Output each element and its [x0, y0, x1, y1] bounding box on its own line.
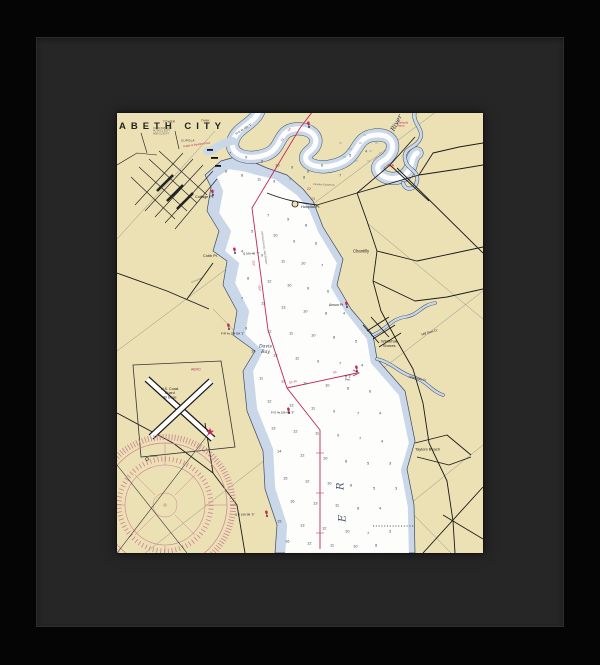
sounding-depth: 10 [273, 233, 277, 238]
label-light-1: Fl G 4s 16ft “1” [235, 123, 252, 136]
label-aero: AERO [191, 368, 201, 372]
sounding-depth: 13 [289, 403, 293, 408]
sounding-depth: 8 [345, 459, 347, 464]
label-river-letter-e: E [337, 515, 348, 522]
label-cobb-pt: Cobb Pt. [203, 254, 218, 258]
sounding-depth: 9 [287, 217, 289, 222]
sounding-depth: 16 [285, 539, 289, 544]
sounding-depth: 8 [350, 483, 352, 488]
sounding-depth: 9 [245, 155, 247, 160]
label-light-2: Fl R 4s 15ft 5M “2” [221, 332, 244, 335]
sounding-depth: 10 [353, 544, 357, 549]
sounding-depth: 11 [259, 376, 263, 381]
mat-board: ABETH CITY TOWERTANKCUPOLAOVHD PWR CAB A… [36, 37, 564, 627]
label-chantilly: Chantilly [353, 249, 369, 254]
sounding-depth: 9 [273, 179, 275, 184]
label-tank: TANK [201, 119, 210, 122]
sounding-depth: 12 [281, 379, 285, 384]
chart-labels-layer: TOWERTANKCUPOLAOVHD PWR CAB AUTH CL 50 F… [117, 113, 483, 553]
sounding-depth: 9 [333, 409, 335, 414]
label-route-23: 23 [311, 197, 315, 201]
sounding-depth: 13 [273, 353, 277, 358]
sounding-depth: 4 [241, 249, 243, 254]
sounding-depth: 4 [379, 411, 381, 416]
sounding-depth: 16 [290, 499, 294, 504]
label-course-231: 231° [252, 260, 256, 267]
label-route-22: 22 [307, 187, 311, 191]
sounding-depth: 8 [261, 159, 263, 164]
chart-print: ABETH CITY TOWERTANKCUPOLAOVHD PWR CAB A… [117, 113, 483, 553]
label-route-18a: 18A [387, 163, 394, 168]
sounding-depth: 11 [311, 406, 315, 411]
sounding-depth: 11 [257, 177, 261, 182]
sounding-depth: 10 [311, 333, 315, 338]
sounding-depth: 8 [357, 506, 359, 511]
sounding-depth: 9 [245, 326, 247, 331]
label-bridge-note: OVHD PWR CAB AUTH CL 50 FT HOR CL 80 FT [153, 127, 172, 135]
sounding-depth: 8 [347, 386, 349, 391]
sounding-depth: 7 [321, 263, 323, 268]
sounding-depth: 7 [359, 436, 361, 441]
label-davis-bay: Davis Bay [259, 344, 272, 355]
label-hospital-pt: Hospital Pt. [301, 205, 320, 209]
label-areneuse-cr: Areneuse Cr [408, 375, 426, 382]
sounding-depth: 3 [389, 529, 391, 534]
sounding-depth: 5 [367, 461, 369, 466]
sounding-depth: 4 [365, 149, 367, 154]
sounding-depth: 7 [289, 177, 291, 182]
label-course-54-top: 54 [287, 127, 292, 132]
sounding-depth: 13 [281, 305, 285, 310]
sounding-depth: 8 [307, 169, 309, 174]
sounding-depth: 12 [267, 279, 271, 284]
label-river-letter-r: R [335, 482, 346, 490]
label-light-2-priv: R “2” Priv [345, 375, 351, 381]
sounding-depth: 3 [395, 486, 397, 491]
sounding-depth: 8 [305, 223, 307, 228]
sounding-depth: 8 [241, 173, 243, 178]
sounding-depth: 7 [357, 411, 359, 416]
sounding-depth: 5 [355, 339, 357, 344]
sounding-depth: 12 [267, 329, 271, 334]
sounding-depth: 6 [225, 169, 227, 174]
label-course-51-44: 51 44 [289, 379, 297, 384]
sounding-depth: 4 [343, 311, 345, 316]
sounding-depth: 5 [251, 229, 253, 234]
sounding-depth: 10 [325, 383, 329, 388]
sounding-depth: 9 [293, 239, 295, 244]
sounding-depth: 13 [300, 523, 304, 528]
sounding-depth: 6 [327, 289, 329, 294]
sounding-depth: 10 [345, 529, 349, 534]
label-taylors-beach: Taylors Beach [415, 447, 440, 452]
sounding-depth: 10 [275, 163, 279, 168]
sounding-depth: 9 [261, 253, 263, 258]
sounding-depth: 4 [379, 506, 381, 511]
sounding-depth: 7 [229, 151, 231, 156]
sounding-depth: 5 [349, 153, 351, 158]
sounding-depth: 10 [303, 309, 307, 314]
sounding-depth: 10 [327, 481, 331, 486]
sounding-depth: 8 [325, 311, 327, 316]
sounding-depth: 13 [313, 501, 317, 506]
label-light-5: Fl G 4s 15ft 4M “5” [271, 411, 294, 414]
label-cottage-pt: Cottage Pt. [195, 195, 214, 199]
sounding-depth: 12 [305, 479, 309, 484]
sounding-depth: 11 [289, 331, 293, 336]
label-anson-pt: Anson Pt [329, 303, 343, 307]
sounding-depth: 14 [277, 449, 281, 454]
sounding-depth: 6 [315, 241, 317, 246]
label-light-7: Q 16ft 4M “7” [243, 252, 259, 255]
sounding-depth: 10 [287, 283, 291, 288]
sounding-depth: 9 [317, 359, 319, 364]
sounding-depth: 7 [367, 531, 369, 536]
label-course-54-mid: 54 [333, 370, 337, 374]
sounding-depth: 11 [281, 259, 285, 264]
label-tower: TOWER [163, 120, 175, 123]
sounding-depth: 7 [339, 173, 341, 178]
sounding-depth: 12 [267, 399, 271, 404]
sounding-depth: 10 [301, 261, 305, 266]
sounding-depth: 12 [293, 429, 297, 434]
sounding-depth: 15 [283, 476, 287, 481]
label-camden-causeway: Camden Causeway [313, 183, 335, 187]
sounding-depth: 3 [389, 461, 391, 466]
sounding-depth: 8 [247, 276, 249, 281]
sounding-depth: 11 [303, 381, 307, 386]
label-rose-tank: TANK [150, 455, 158, 458]
sounding-depth: 6 [369, 389, 371, 394]
sounding-depth: 7 [241, 296, 243, 301]
label-mill-dam-cr: Mill Dam Cr [421, 328, 438, 336]
sounding-depth: 13 [271, 426, 275, 431]
label-cupola: CUPOLA [181, 139, 195, 142]
label-course-051: 051° [258, 285, 262, 292]
sounding-depth: 7 [267, 213, 269, 218]
sounding-depth: 11 [295, 356, 299, 361]
sounding-depth: 10 [251, 349, 255, 354]
sounding-depth: 12 [300, 453, 304, 458]
label-whitehall-shores: Whitehall Shores [381, 339, 397, 348]
label-light-9: Q G 16ft 3M “9” [235, 513, 254, 516]
label-coast-guard-air-base: U.S. Coast Guard Air Base [161, 387, 178, 399]
sounding-depth: 12 [322, 526, 326, 531]
label-hw-note: 2.4 mi HW [191, 277, 203, 284]
sounding-depth: 10 [323, 456, 327, 461]
sounding-depth: 12 [307, 541, 311, 546]
picture-frame: ABETH CITY TOWERTANKCUPOLAOVHD PWR CAB A… [0, 0, 600, 665]
sounding-depth: 8 [303, 175, 305, 180]
sounding-depth: 9 [291, 165, 293, 170]
sounding-depth: 5 [373, 486, 375, 491]
sounding-depth: 11 [330, 543, 334, 548]
sounding-depth: 11 [315, 431, 319, 436]
sounding-depth: 8 [333, 335, 335, 340]
label-course-51-top: 51 [280, 137, 285, 142]
sounding-depth: 7 [339, 361, 341, 366]
sounding-depth: 4 [361, 363, 363, 368]
sounding-depth: 9 [307, 286, 309, 291]
sounding-depth: 11 [261, 301, 265, 306]
sounding-depth: 6 [321, 163, 323, 168]
label-intracoastal-waterway: INTRACOASTAL WATERWAY [260, 231, 268, 265]
sounding-depth: 9 [337, 433, 339, 438]
sounding-depth: 15 [277, 519, 281, 524]
sounding-depth: 11 [335, 503, 339, 508]
sounding-depth: 8 [375, 543, 377, 548]
sounding-depth: 4 [381, 439, 383, 444]
